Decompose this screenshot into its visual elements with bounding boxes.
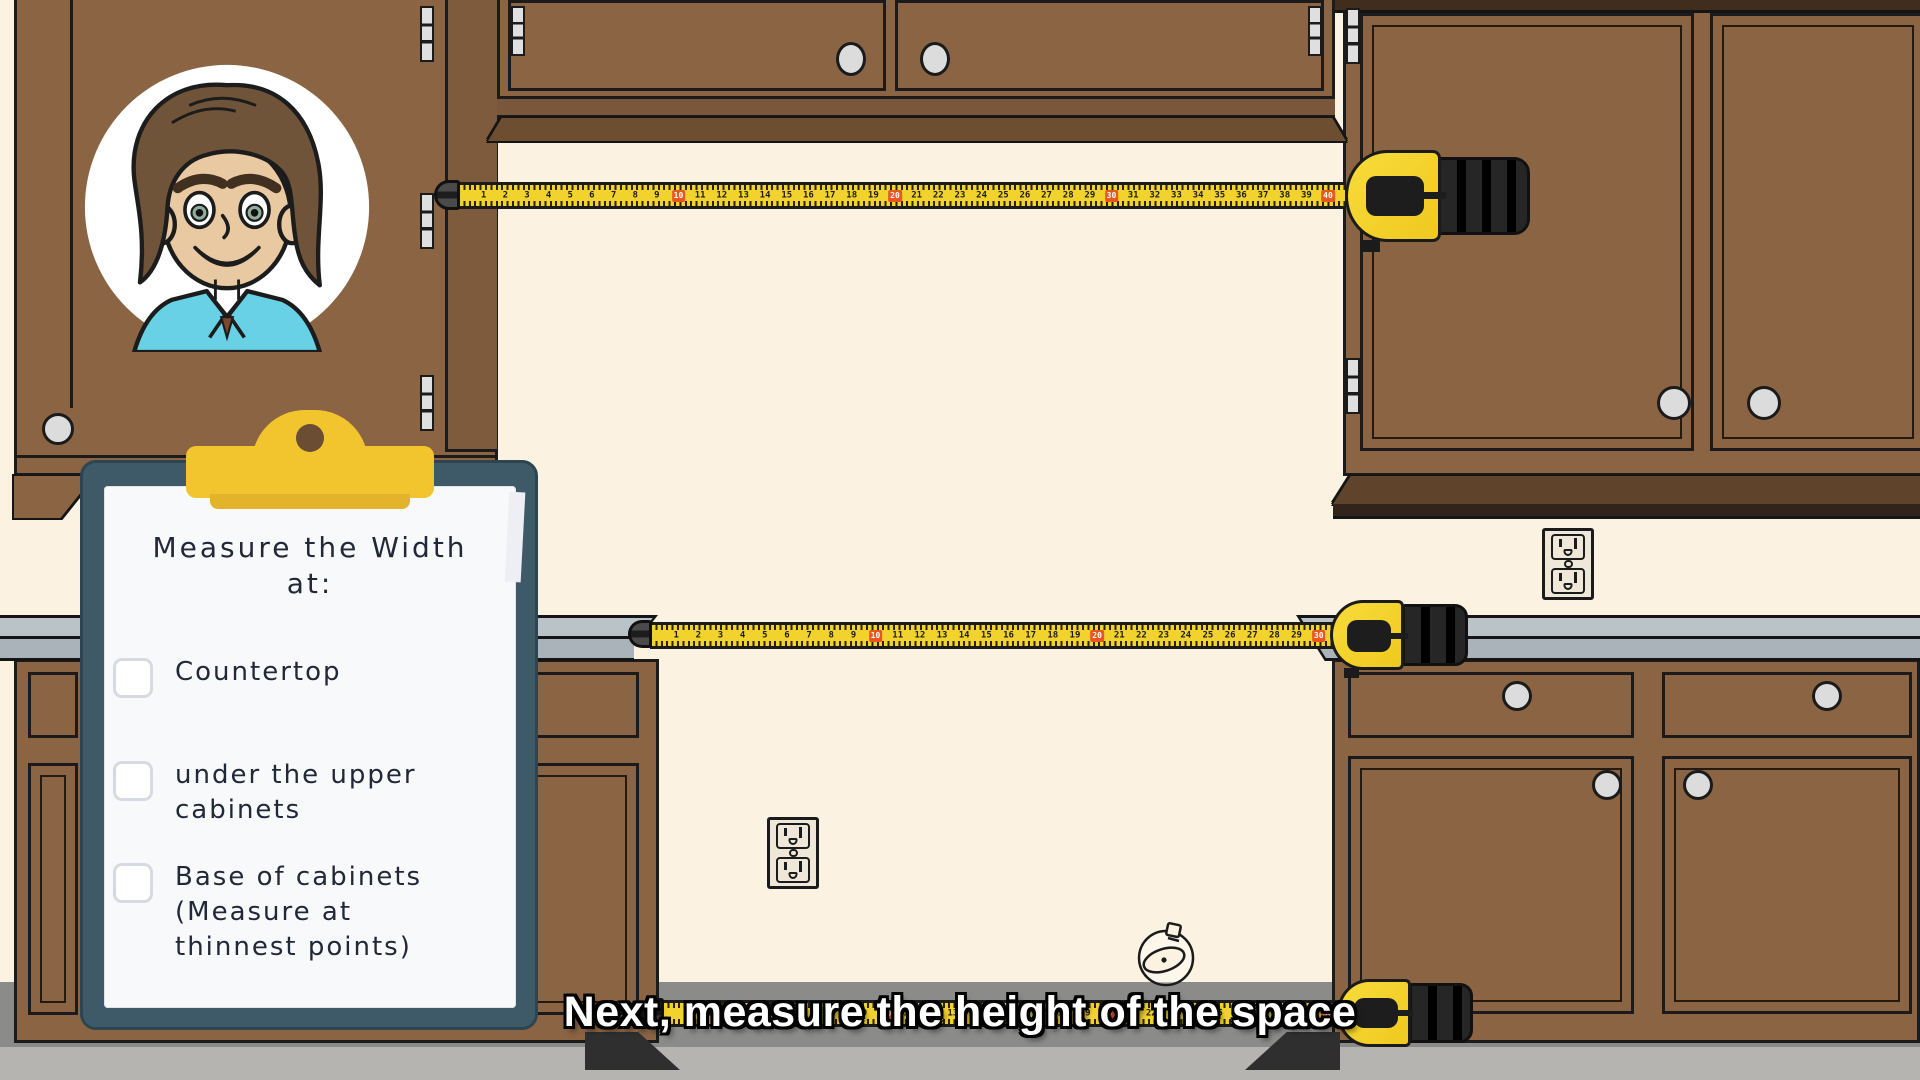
tape-number: 12 (716, 191, 727, 200)
cabinet-stile-line (70, 0, 73, 408)
tape-number: 27 (1247, 631, 1258, 640)
tape-body-stem (1388, 633, 1408, 639)
cabinet-hinge (420, 375, 434, 431)
item-label: Countertop (175, 655, 465, 690)
item-label: Base of cabinets (Measure at thinnest po… (175, 860, 465, 965)
cabinet-hinge (1346, 358, 1360, 414)
upper-right-shadow-band (1333, 504, 1920, 519)
outlet-screw (789, 849, 798, 858)
tape-number: 23 (1158, 631, 1169, 640)
cabinet-hinge (511, 6, 525, 56)
tape-number: 40 (1321, 190, 1335, 202)
drawer-front (28, 672, 78, 738)
avatar (82, 62, 372, 352)
tape-number: 19 (1070, 631, 1081, 640)
tape-body-grip (1438, 157, 1530, 235)
tape-number: 2 (503, 191, 508, 200)
tape-number: 32 (1149, 191, 1160, 200)
tape-number: 18 (1047, 631, 1058, 640)
outlet-socket (776, 823, 810, 849)
tape-number: 25 (998, 191, 1009, 200)
tape-number: 4 (546, 191, 551, 200)
tape-number: 3 (718, 631, 723, 640)
tape-number: 1 (481, 191, 486, 200)
tape-body-grip (1402, 604, 1468, 666)
tape-number: 27 (1041, 191, 1052, 200)
tape-number: 23 (955, 191, 966, 200)
tape-number: 13 (738, 191, 749, 200)
tape-number: 26 (1225, 631, 1236, 640)
clipboard-clip-lip (210, 494, 410, 509)
tape-number: 35 (1214, 191, 1225, 200)
tape-number: 18 (846, 191, 857, 200)
door-knob (1683, 770, 1713, 800)
outlet-screw (1564, 560, 1573, 569)
kitchen-scene: 1234567891011121314151617181920212223242… (0, 0, 1920, 1080)
tape-number: 30 (1312, 630, 1326, 642)
tape-number: 17 (1025, 631, 1036, 640)
tape-number: 25 (1202, 631, 1213, 640)
drawer-knob (1502, 681, 1532, 711)
checkbox-countertop[interactable] (113, 658, 153, 698)
tape-number: 37 (1258, 191, 1269, 200)
tape-number: 4 (740, 631, 745, 640)
tape-number: 21 (911, 191, 922, 200)
tape-number: 14 (959, 631, 970, 640)
checkbox-under-upper-cabinets[interactable] (113, 761, 153, 801)
tape-number: 6 (589, 191, 594, 200)
tape-number: 19 (868, 191, 879, 200)
upper-left-side-panel (445, 0, 497, 452)
tape-body-clip (1366, 176, 1424, 216)
clipboard-clip-hole (296, 424, 324, 452)
cabinet-hinge (1346, 8, 1360, 64)
tape-hook (434, 180, 460, 210)
subtitle-caption: Next, measure the height of the space (0, 988, 1920, 1037)
tape-number: 8 (632, 191, 637, 200)
cabinet-knob (42, 413, 74, 445)
cabinet-hinge (1308, 6, 1322, 56)
tape-number: 10 (869, 630, 883, 642)
tape-number: 15 (981, 631, 992, 640)
checklist-title: Measure the Width at: (104, 530, 516, 603)
outlet-socket (776, 857, 810, 883)
tape-body-stem (1420, 192, 1446, 199)
tape-number: 20 (888, 190, 902, 202)
tape-number: 14 (760, 191, 771, 200)
upper-right-door-right (1710, 13, 1920, 451)
upper-middle-door-right (895, 0, 1324, 91)
tape-number: 17 (825, 191, 836, 200)
outlet-socket (1551, 534, 1585, 560)
tape-number: 24 (1180, 631, 1191, 640)
tape-number: 29 (1291, 631, 1302, 640)
tape-number: 26 (1019, 191, 1030, 200)
drawer-front (1662, 672, 1912, 738)
tape-number: 21 (1114, 631, 1125, 640)
tape-number: 22 (1136, 631, 1147, 640)
tape-number: 5 (762, 631, 767, 640)
tape-number: 34 (1193, 191, 1204, 200)
tape-number: 36 (1236, 191, 1247, 200)
tape-number: 28 (1063, 191, 1074, 200)
upper-right-top-band (1335, 0, 1920, 13)
tape-body-tab (1344, 668, 1359, 678)
cabinet-knob (920, 42, 950, 76)
clipboard-paper: Measure the Width at: Countertop under t… (104, 486, 516, 1008)
wall-outlet (1542, 528, 1594, 600)
tape-number: 7 (806, 631, 811, 640)
tape-hook (628, 620, 652, 648)
tape-number: 9 (654, 191, 659, 200)
tape-number: 20 (1090, 630, 1104, 642)
measuring-tape-countertop: 1234567891011121314151617181920212223242… (650, 622, 1336, 649)
tape-number: 15 (781, 191, 792, 200)
tape-number: 6 (784, 631, 789, 640)
watch-icon (1126, 912, 1206, 992)
cabinet-hinge (420, 6, 434, 62)
outlet-socket (1551, 568, 1585, 594)
tape-number: 11 (892, 631, 903, 640)
tape-number: 16 (803, 191, 814, 200)
measuring-tape-under-cabinets: 1234567891011121314151617181920212223242… (458, 182, 1345, 209)
tape-number: 5 (568, 191, 573, 200)
tape-number: 13 (937, 631, 948, 640)
wall-outlet (767, 817, 819, 889)
tape-number: 7 (611, 191, 616, 200)
tape-body-tab (1362, 240, 1380, 252)
cabinet-knob (1657, 386, 1691, 420)
cabinet-door (28, 763, 78, 1015)
tape-number: 30 (1105, 190, 1119, 202)
tape-number: 29 (1084, 191, 1095, 200)
cabinet-door (1348, 756, 1634, 1014)
upper-middle-door-left (508, 0, 886, 91)
cabinet-knob (1747, 386, 1781, 420)
tape-number: 9 (851, 631, 856, 640)
tape-number: 28 (1269, 631, 1280, 640)
checkbox-base-of-cabinets[interactable] (113, 863, 153, 903)
tape-number: 22 (933, 191, 944, 200)
tape-number: 24 (976, 191, 987, 200)
tape-number: 2 (696, 631, 701, 640)
drawer-knob (1812, 681, 1842, 711)
cabinet-hinge (420, 193, 434, 249)
tape-number: 39 (1301, 191, 1312, 200)
floor-front (0, 1047, 1920, 1080)
tape-number: 1 (673, 631, 678, 640)
tape-number: 10 (672, 190, 686, 202)
tape-number: 8 (829, 631, 834, 640)
tape-number: 11 (695, 191, 706, 200)
upper-middle-rail (497, 96, 1335, 118)
item-label: under the upper cabinets (175, 758, 465, 828)
tape-number: 16 (1003, 631, 1014, 640)
door-knob (1592, 770, 1622, 800)
tape-number: 33 (1171, 191, 1182, 200)
tape-number: 38 (1279, 191, 1290, 200)
cabinet-knob (836, 42, 866, 76)
drawer-front (1348, 672, 1634, 738)
tape-number: 12 (914, 631, 925, 640)
tape-number: 3 (524, 191, 529, 200)
tape-number: 31 (1128, 191, 1139, 200)
tape-body-clip (1347, 620, 1391, 652)
